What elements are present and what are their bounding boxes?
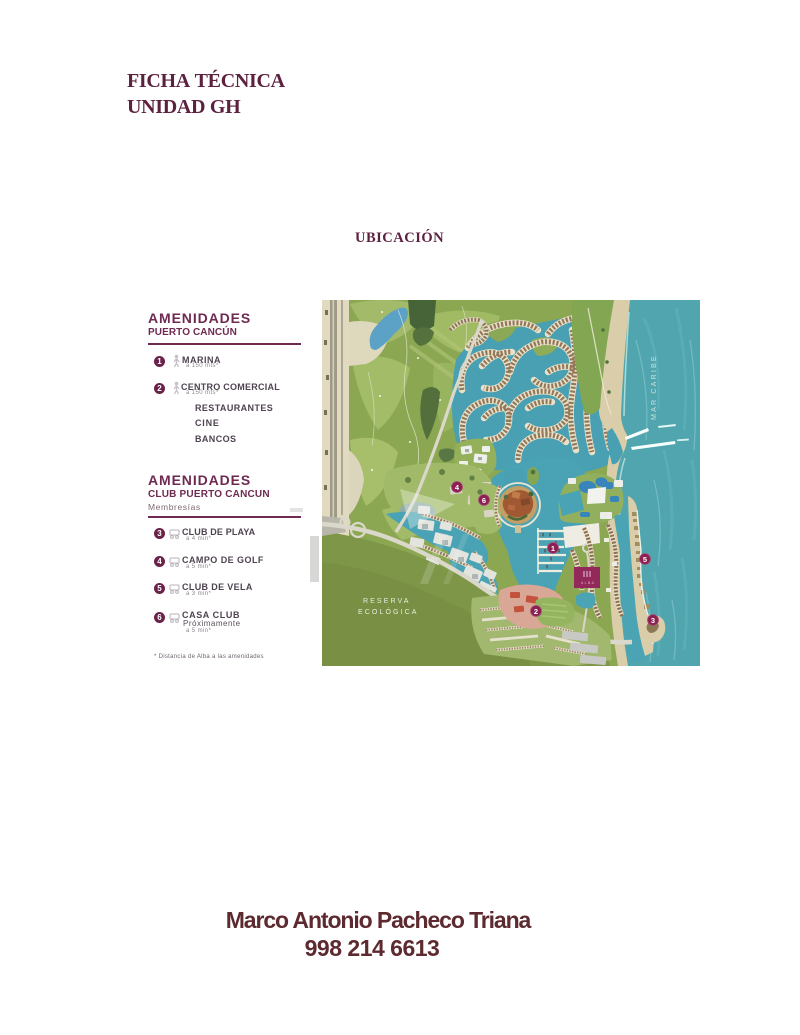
svg-text:5: 5 xyxy=(643,555,647,564)
svg-text:1: 1 xyxy=(551,544,555,553)
svg-text:2: 2 xyxy=(534,607,538,616)
svg-text:6: 6 xyxy=(482,496,486,505)
svg-text:3: 3 xyxy=(651,616,655,625)
